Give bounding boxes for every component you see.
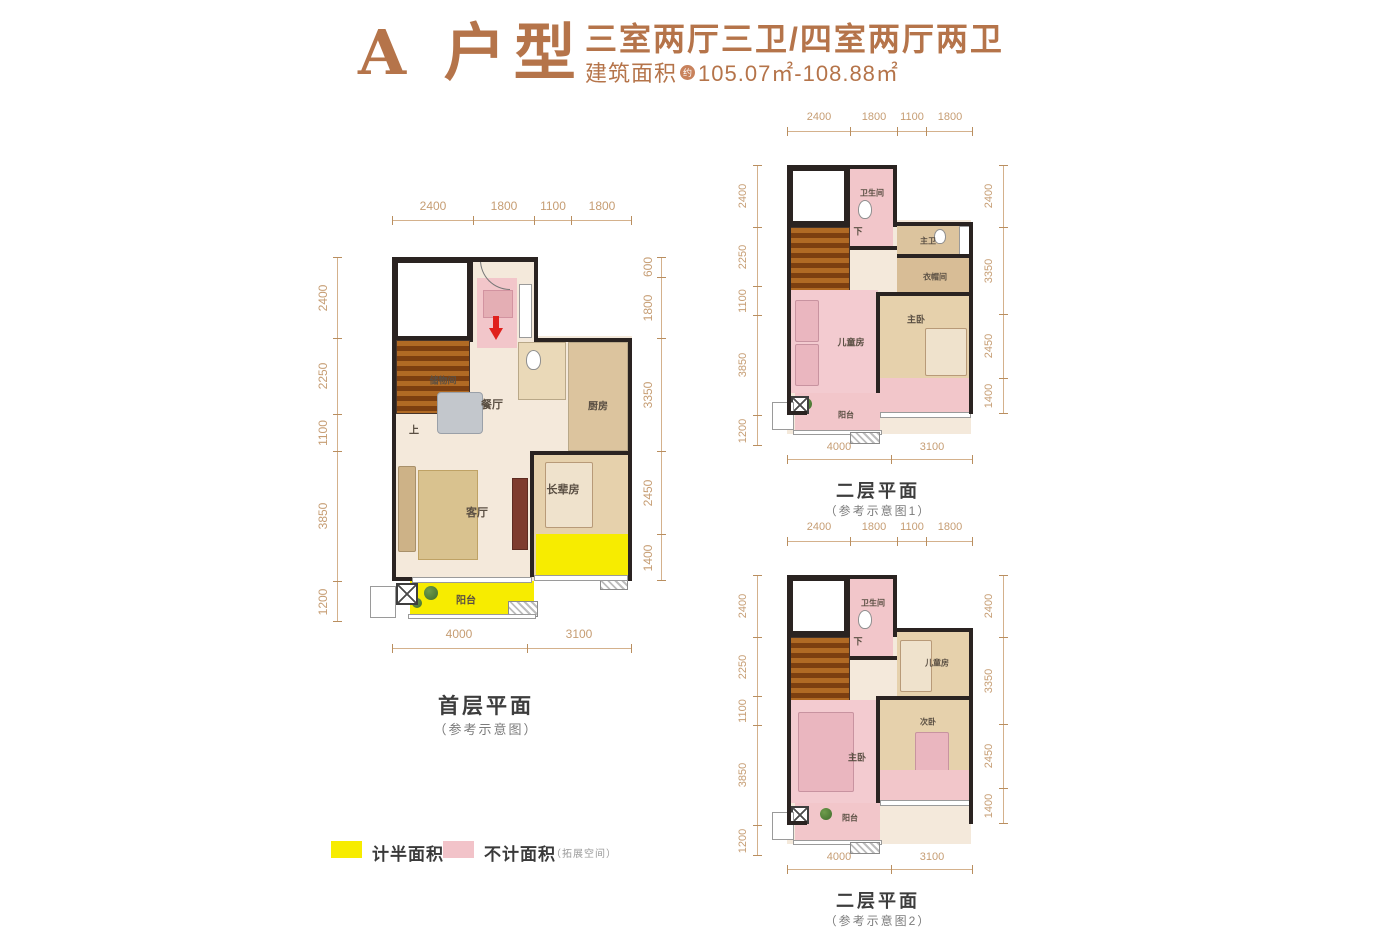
wall: [530, 455, 534, 577]
half-area-swatch: [331, 841, 362, 858]
wall: [876, 292, 880, 393]
dim-value: 1100: [900, 521, 924, 533]
dim-value: 1400: [983, 794, 995, 818]
room-label-kids: 儿童房: [925, 658, 949, 669]
kid-bed-icon: [795, 300, 819, 342]
dim-value: 1200: [737, 829, 749, 853]
wall: [850, 246, 897, 250]
plan-caption: 二层平面: [836, 477, 920, 503]
layout-title: 三室两厅三卫/四室两厅两卫: [585, 14, 1004, 60]
page-title: A 户型: [358, 2, 584, 92]
dim-line-left: [337, 257, 338, 622]
dim-line-bottom: [787, 869, 973, 870]
bay-strip-excluded: [880, 770, 971, 800]
dim-value: 3100: [566, 627, 593, 641]
dim-value: 1400: [983, 384, 995, 408]
room-label-balcony: 阳台: [838, 410, 854, 421]
dim-value: 3350: [983, 669, 995, 693]
dim-value: 3350: [641, 382, 655, 409]
dim-value: 1200: [316, 589, 330, 616]
plan-subcaption: （参考示意图）: [433, 719, 538, 738]
wall: [969, 222, 973, 414]
entry-cabinet: [519, 284, 532, 338]
bathroom-first: [518, 342, 566, 400]
exterior-patch: [897, 571, 975, 630]
dim-value: 2400: [983, 594, 995, 618]
wall: [534, 338, 632, 342]
dim-value: 1800: [589, 199, 616, 213]
room-label-master: 主卧: [848, 751, 866, 764]
dim-value: 1800: [641, 295, 655, 322]
dim-value: 1100: [737, 699, 749, 723]
dim-value: 2450: [641, 480, 655, 507]
dim-value: 2400: [807, 111, 831, 123]
dim-value: 3850: [737, 763, 749, 787]
void-shaft: [787, 165, 850, 227]
stairs-direction-label: 下: [853, 225, 862, 238]
window: [412, 577, 532, 583]
room-label-master-bath: 主卫: [920, 236, 936, 247]
wall: [628, 338, 632, 581]
master-bed-icon: [798, 712, 854, 792]
dim-value: 2450: [983, 744, 995, 768]
wall: [969, 628, 973, 824]
dim-value: 2250: [316, 363, 330, 390]
dim-value: 1400: [641, 545, 655, 572]
plan-caption: 首层平面: [438, 690, 534, 720]
room-label-bath: 卫生间: [861, 598, 885, 609]
wall: [530, 451, 632, 455]
ac-platform-icon: [396, 583, 418, 605]
excluded-area-swatch: [443, 841, 474, 858]
bay-window: [534, 575, 628, 581]
bay-window: [880, 800, 971, 806]
dim-value: 3100: [920, 851, 944, 863]
dim-value: 1100: [737, 289, 749, 313]
stairs-direction-label: 下: [853, 635, 862, 648]
dim-line-right: [1003, 165, 1004, 414]
dim-line-right: [661, 257, 662, 581]
dim-value: 3850: [316, 503, 330, 530]
balcony-rail: [408, 614, 536, 619]
exterior-patch: [897, 161, 975, 220]
toilet-icon: [858, 200, 872, 219]
half-area-label: 计半面积: [372, 840, 444, 865]
equipment-platform: [370, 586, 396, 618]
dim-value: 1800: [862, 521, 886, 533]
dim-value: 1800: [862, 111, 886, 123]
room-label-closet: 衣帽间: [923, 272, 947, 283]
room-label-master: 主卧: [907, 313, 925, 326]
wall: [392, 257, 396, 581]
wall: [787, 575, 791, 825]
room-label-storage: 储物间: [429, 374, 456, 387]
wall: [787, 821, 807, 825]
room-label-living: 客厅: [466, 504, 488, 520]
dim-line-right: [1003, 575, 1004, 824]
wall: [787, 165, 791, 415]
dim-value: 2250: [737, 655, 749, 679]
dim-line-left: [757, 575, 758, 856]
bay-strip-excluded: [880, 378, 971, 412]
dim-value: 2400: [737, 594, 749, 618]
room-label-kitchen: 厨房: [588, 398, 608, 413]
room-label-elder: 长辈房: [547, 481, 580, 497]
wall: [787, 165, 897, 169]
elder-half-area-strip: [536, 534, 628, 577]
dim-value: 1100: [540, 199, 566, 213]
wall: [880, 292, 973, 296]
wall: [392, 257, 538, 262]
room-label-balcony: 阳台: [456, 592, 476, 607]
kitchen-floor: [568, 342, 628, 451]
excluded-area-note: （拓展空间）: [551, 845, 617, 860]
plant-icon: [820, 808, 832, 820]
dim-line-bottom: [787, 459, 973, 460]
dim-value: 600: [641, 257, 655, 277]
entry-mat: [483, 290, 513, 318]
tv-cabinet-icon: [512, 478, 528, 550]
exterior-patch: [536, 253, 636, 336]
wall: [893, 222, 973, 226]
wall: [897, 254, 973, 258]
dim-value: 2400: [316, 285, 330, 312]
entrance-arrow-icon: [489, 316, 503, 342]
dim-value: 1200: [737, 419, 749, 443]
kid-bed-icon: [795, 344, 819, 386]
approx-badge-icon: 约: [680, 65, 695, 80]
area-prefix: 建筑面积: [585, 56, 677, 88]
stairs-direction-label: 上: [409, 422, 419, 437]
toilet-icon: [858, 610, 872, 629]
dim-value: 4000: [827, 441, 851, 453]
hatch-block: [850, 432, 880, 444]
dim-value: 3100: [920, 441, 944, 453]
void-shaft: [787, 575, 850, 637]
room-label-bath: 卫生间: [860, 188, 884, 199]
dim-value: 2400: [420, 199, 447, 213]
dim-value: 4000: [827, 851, 851, 863]
void-shaft: [392, 257, 473, 342]
wall: [787, 575, 897, 579]
area-line: 建筑面积 约 105.07㎡-108.88㎡: [585, 56, 899, 88]
dim-value: 4000: [446, 627, 473, 641]
room-label-balcony: 阳台: [842, 813, 858, 824]
toilet-icon: [526, 350, 541, 370]
dim-value: 1800: [491, 199, 518, 213]
sofa-icon: [398, 466, 416, 552]
plant-icon: [424, 586, 438, 600]
wall: [893, 628, 973, 632]
dim-value: 1800: [938, 111, 962, 123]
dim-value: 2250: [737, 245, 749, 269]
wall: [893, 165, 897, 227]
room-label-kids: 儿童房: [837, 336, 864, 349]
dim-line-bottom: [392, 648, 632, 649]
dim-value: 3350: [983, 259, 995, 283]
wall: [850, 656, 897, 660]
wall: [876, 696, 880, 803]
room-label-dining: 餐厅: [481, 396, 503, 412]
dim-value: 1100: [900, 111, 924, 123]
dim-value: 2400: [807, 521, 831, 533]
wall: [392, 577, 414, 581]
dim-line-left: [757, 165, 758, 446]
dining-table-icon: [437, 392, 483, 434]
plan-subcaption: （参考示意图2）: [825, 912, 932, 929]
dim-value: 1100: [316, 420, 330, 446]
dim-line-top: [787, 541, 973, 542]
dim-value: 1800: [938, 521, 962, 533]
dim-value: 2450: [983, 334, 995, 358]
area-value: 105.07㎡-108.88㎡: [698, 56, 899, 88]
bay-window: [880, 412, 971, 418]
dim-value: 3850: [737, 353, 749, 377]
master-bed-icon: [925, 328, 967, 376]
hatch-block: [850, 842, 880, 854]
dim-line-top: [787, 131, 973, 132]
excluded-area-label: 不计面积: [484, 840, 556, 865]
dim-line-top: [392, 220, 632, 221]
dim-value: 2400: [983, 184, 995, 208]
plan-subcaption: （参考示意图1）: [825, 502, 932, 519]
dim-value: 2400: [737, 184, 749, 208]
wall: [880, 696, 973, 700]
floorplan-sheet: A 户型 三室两厅三卫/四室两厅两卫 建筑面积 约 105.07㎡-108.88…: [0, 0, 1400, 933]
wall: [787, 411, 807, 415]
plan-caption: 二层平面: [836, 887, 920, 913]
second-bed-icon: [915, 732, 949, 772]
wall: [534, 257, 538, 342]
room-label-second: 次卧: [920, 717, 936, 728]
